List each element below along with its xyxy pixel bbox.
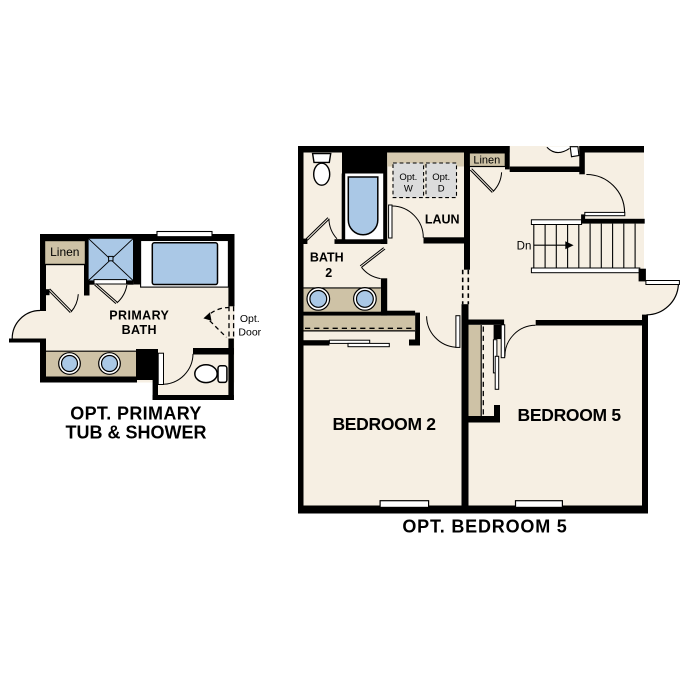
svg-text:BEDROOM 5: BEDROOM 5 [518,405,622,425]
svg-text:Dn: Dn [517,240,532,252]
svg-text:2: 2 [325,266,332,280]
svg-text:Linen: Linen [50,245,79,259]
svg-text:LAUN: LAUN [425,212,460,226]
svg-text:Door: Door [238,327,261,339]
svg-text:Linen: Linen [473,154,500,166]
svg-text:Opt.: Opt. [399,172,417,183]
svg-text:BATH: BATH [122,323,157,337]
svg-text:OPT. BEDROOM 5: OPT. BEDROOM 5 [402,517,567,537]
svg-text:W: W [404,184,413,195]
svg-text:OPT. PRIMARY: OPT. PRIMARY [70,404,202,424]
svg-text:BATH: BATH [310,251,344,265]
svg-text:Opt.: Opt. [432,172,450,183]
svg-text:BEDROOM 2: BEDROOM 2 [332,414,436,434]
svg-text:PRIMARY: PRIMARY [109,308,169,322]
svg-text:D: D [438,184,445,195]
svg-text:Opt.: Opt. [240,313,260,325]
svg-text:TUB & SHOWER: TUB & SHOWER [66,423,207,443]
